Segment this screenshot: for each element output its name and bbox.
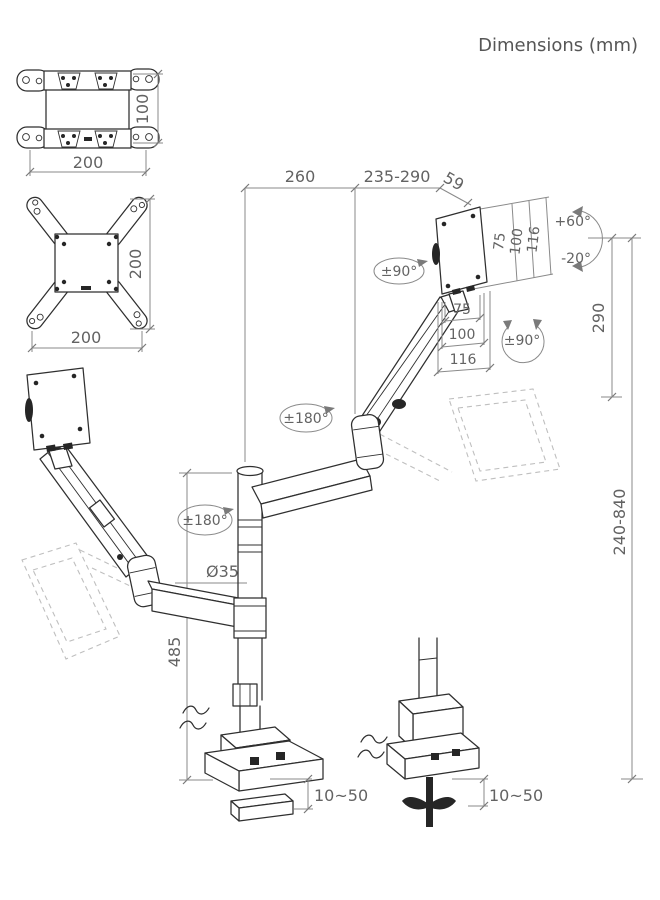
- desk-clamp-drawing: 10~50: [180, 706, 368, 821]
- vesa-adapter-drawing: 100 200: [17, 69, 163, 176]
- head-plate-drawing: 75 100 116 75 100 116: [432, 197, 553, 376]
- vesa-adapter-height-label: 100: [133, 94, 152, 125]
- dimension-diagram-page: Dimensions (mm) 100: [0, 0, 660, 900]
- plate-vertical-dim-75-label: 75: [491, 232, 509, 252]
- vesa-x-height-label: 200: [126, 249, 145, 280]
- column-height-label: 485: [165, 637, 184, 668]
- plate-vertical-dim-116-label: 116: [524, 225, 543, 254]
- vesa-x-width-label: 200: [71, 328, 102, 347]
- angle-annotations: +60° -20° ±90° ±90° ±180° ±180°: [178, 206, 602, 535]
- right-arm-drawing: [252, 293, 462, 518]
- left-arm-drawing: [25, 368, 248, 629]
- pole-diameter-label: Ø35: [206, 562, 239, 581]
- screen-rotation-label: ±90°: [504, 333, 541, 349]
- dimension-diagram: Dimensions (mm) 100: [0, 0, 660, 900]
- front-reach-label: 235-290: [364, 167, 431, 186]
- height-dimension-lines: 290 240-840: [588, 234, 643, 783]
- tilt-up-label: +60°: [554, 214, 591, 230]
- riser-height-label: 290: [589, 303, 608, 334]
- height-range-label: 240-840: [610, 489, 629, 556]
- plate-horizontal-dim-116-label: 116: [450, 352, 477, 368]
- page-title: Dimensions (mm): [478, 35, 638, 56]
- grommet-thickness-label: 10~50: [489, 786, 543, 805]
- upper-arm-swivel-label: ±180°: [283, 411, 328, 427]
- vesa-x-drawing: 200 200: [24, 194, 155, 352]
- lower-arm-swivel-label: ±180°: [182, 513, 227, 529]
- clamp-thickness-label: 10~50: [314, 786, 368, 805]
- head-swivel-label: ±90°: [381, 264, 418, 280]
- plate-horizontal-dim-75-label: 75: [453, 302, 471, 318]
- grommet-mount-drawing: 10~50: [358, 638, 543, 827]
- vesa-adapter-width-label: 200: [73, 153, 104, 172]
- tilt-down-label: -20°: [561, 251, 591, 267]
- plate-horizontal-dim-100-label: 100: [449, 327, 476, 343]
- rear-reach-label: 260: [285, 167, 316, 186]
